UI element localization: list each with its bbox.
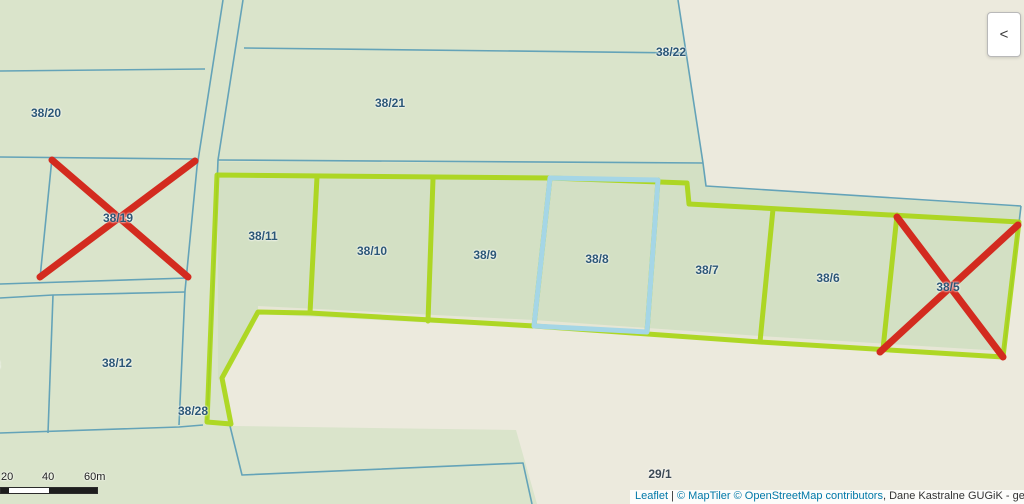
attribution-bar: Leaflet | © MapTiler © OpenStreetMap con… [630, 490, 1024, 504]
leaflet-link[interactable]: Leaflet [635, 490, 668, 502]
attribution-text: , Dane Kastralne GUGiK - geoportal.gov.p… [883, 490, 1024, 502]
beige-top-right [678, 0, 1024, 206]
scale-label: 40 [42, 471, 54, 483]
scale-bar [0, 487, 98, 494]
scale-label: 60m [84, 471, 105, 483]
map-canvas[interactable]: 38/2038/1938/2138/2238/1138/1038/938/838… [0, 0, 1024, 504]
chevron-left-icon: < [1000, 26, 1009, 43]
scale-label: 20 [1, 471, 13, 483]
scale-labels: 204060m [0, 471, 120, 485]
scale-segment [49, 488, 97, 493]
maptiler-link[interactable]: © MapTiler [677, 490, 734, 502]
scale-control: 204060m [0, 471, 120, 494]
map-base-layer [0, 0, 1024, 504]
attribution-separator: | [668, 490, 677, 502]
scale-segment [1, 488, 9, 493]
osm-link[interactable]: © OpenStreetMap contributors [734, 490, 883, 502]
collapse-panel-button[interactable]: < [987, 12, 1021, 57]
